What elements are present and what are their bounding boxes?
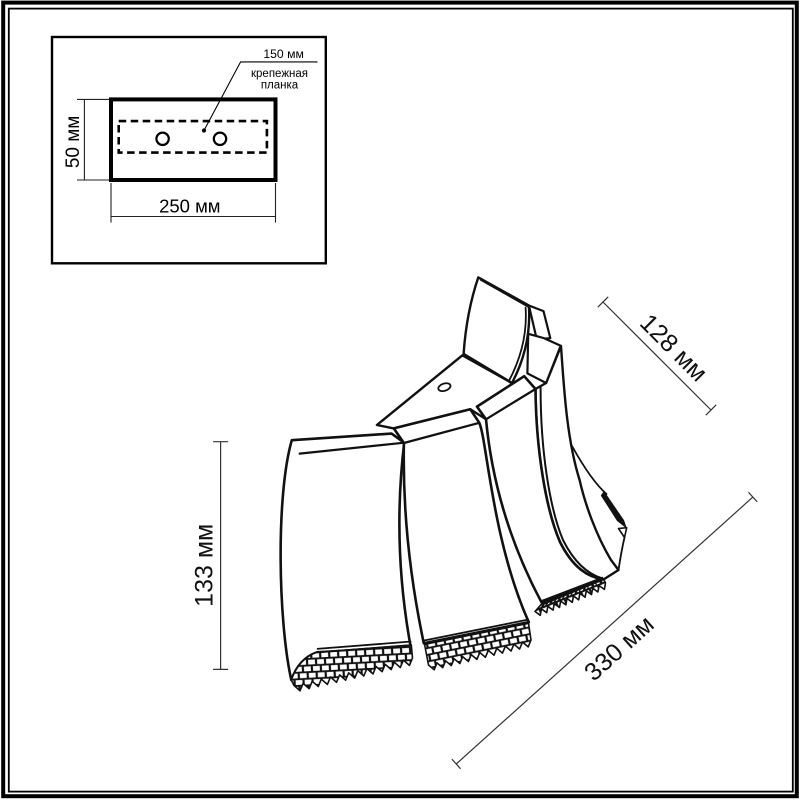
svg-text:250 мм: 250 мм: [159, 195, 220, 216]
svg-text:133 мм: 133 мм: [191, 524, 219, 607]
svg-text:50 мм: 50 мм: [63, 116, 84, 169]
svg-text:крепежная: крепежная: [251, 68, 308, 80]
svg-text:планка: планка: [261, 80, 299, 92]
svg-text:150 мм: 150 мм: [263, 47, 303, 61]
